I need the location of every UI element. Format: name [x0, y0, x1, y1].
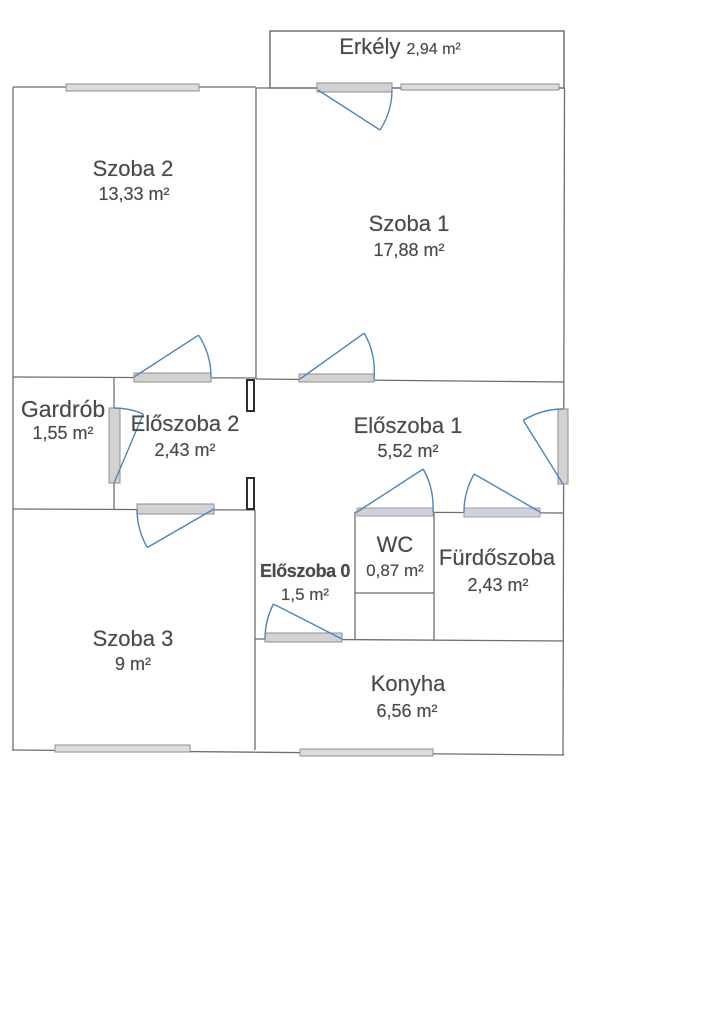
svg-text:17,88 m²: 17,88 m²: [373, 240, 444, 260]
svg-text:2,43 m²: 2,43 m²: [467, 575, 528, 595]
svg-text:2,43 m²: 2,43 m²: [154, 440, 215, 460]
svg-text:Szoba 1: Szoba 1: [369, 211, 450, 236]
svg-text:Előszoba 1: Előszoba 1: [354, 413, 463, 438]
svg-text:6,56 m²: 6,56 m²: [376, 701, 437, 721]
svg-text:1,5 m²: 1,5 m²: [281, 585, 330, 604]
svg-text:1,55 m²: 1,55 m²: [32, 423, 93, 443]
svg-text:Gardrób: Gardrób: [21, 396, 105, 422]
svg-text:9 m²: 9 m²: [115, 654, 151, 674]
svg-text:Fürdőszoba: Fürdőszoba: [439, 545, 556, 570]
svg-text:Szoba 2: Szoba 2: [93, 156, 174, 181]
svg-text:WC: WC: [377, 532, 414, 557]
svg-text:5,52 m²: 5,52 m²: [377, 441, 438, 461]
svg-text:Szoba 3: Szoba 3: [93, 626, 174, 651]
svg-text:Előszoba 2: Előszoba 2: [131, 411, 240, 436]
svg-text:Előszoba 0: Előszoba 0: [260, 561, 350, 581]
svg-text:Konyha: Konyha: [371, 671, 446, 696]
svg-text:0,87 m²: 0,87 m²: [366, 561, 424, 580]
svg-text:13,33 m²: 13,33 m²: [98, 184, 169, 204]
